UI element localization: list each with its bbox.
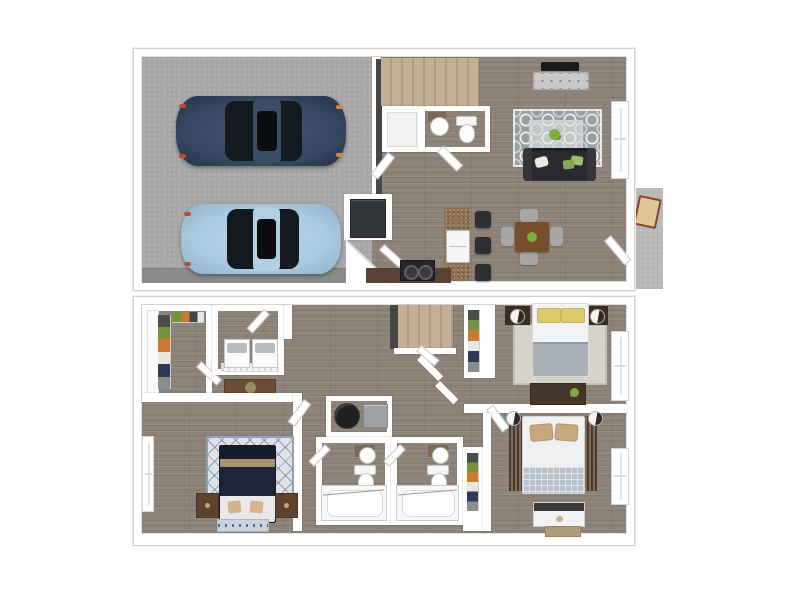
primary-bedroom-top-wall bbox=[142, 393, 302, 402]
bathroom-1-sink bbox=[359, 447, 376, 464]
sofa bbox=[523, 148, 596, 181]
bedroom-3-rug bbox=[545, 526, 581, 537]
bathroom-2 bbox=[391, 437, 463, 525]
walk-in-closet bbox=[142, 305, 212, 400]
mechanical-closet bbox=[326, 396, 392, 437]
half-bath-pedestal-sink bbox=[430, 117, 449, 136]
staircase-second-floor bbox=[398, 305, 453, 349]
fridge-nook bbox=[344, 194, 392, 240]
dining-chair-left bbox=[501, 227, 514, 246]
bedroom-2-bed bbox=[532, 303, 589, 377]
bedroom-2-closet bbox=[464, 305, 495, 378]
navy-car bbox=[176, 96, 346, 166]
burner-right bbox=[418, 265, 433, 280]
bar-stool-1 bbox=[475, 211, 491, 228]
dining-chair-right bbox=[550, 227, 563, 246]
island-double-sink bbox=[446, 230, 470, 263]
bedroom-3-left-wall bbox=[483, 413, 491, 531]
dryer bbox=[252, 339, 278, 368]
bedroom-3-lamp-left bbox=[506, 411, 521, 426]
first-floor-plan bbox=[133, 48, 635, 291]
hanging-clothes-left bbox=[158, 315, 171, 389]
navy-car-sunroof bbox=[257, 111, 277, 152]
garage bbox=[142, 57, 372, 283]
navy-car-taillight-bottom bbox=[179, 154, 186, 158]
pantry-bath-divider bbox=[418, 107, 425, 151]
dining-chair-bottom bbox=[520, 252, 538, 265]
bathroom-2-sink bbox=[432, 447, 449, 464]
light-blue-car bbox=[181, 204, 341, 274]
washer-lid bbox=[227, 343, 246, 354]
living-room-window bbox=[611, 101, 629, 179]
primary-bed-headboard bbox=[220, 446, 275, 459]
washer bbox=[224, 339, 250, 368]
bedroom-3-pillow-left bbox=[529, 423, 553, 442]
dining-chair-top bbox=[520, 209, 538, 222]
burner-left bbox=[404, 265, 419, 280]
sofa-pillow-white bbox=[534, 156, 549, 169]
half-bath-block bbox=[382, 106, 490, 152]
tv-console bbox=[533, 72, 589, 90]
bedroom-3-curtain-left bbox=[509, 416, 522, 491]
dryer-lid bbox=[255, 343, 274, 354]
refrigerator bbox=[350, 199, 386, 238]
bathroom-2-tub bbox=[396, 485, 459, 521]
furnace bbox=[363, 404, 388, 428]
dining-centerpiece-plant bbox=[527, 232, 537, 242]
dining-table bbox=[515, 222, 549, 252]
coffee-table bbox=[529, 120, 583, 150]
bedroom-3-quilt bbox=[523, 467, 584, 493]
sofa-armrest-left bbox=[523, 148, 532, 181]
bedroom-3-window bbox=[611, 448, 629, 505]
bedroom-3-lamp-right bbox=[588, 411, 603, 426]
navy-car-taillight-top bbox=[179, 104, 186, 108]
bedroom-2-nightstand-right bbox=[586, 306, 608, 325]
bedroom-2-lamp-right bbox=[590, 309, 605, 324]
bedroom-3-pillow-right bbox=[554, 423, 578, 442]
bedroom-3-curtain-right bbox=[583, 416, 597, 491]
primary-nightstand-left-knob bbox=[205, 503, 210, 508]
tv bbox=[541, 62, 579, 71]
bedroom-3-bed bbox=[522, 416, 585, 494]
bedroom-3-closet-clothes bbox=[467, 453, 479, 511]
range-stove bbox=[400, 260, 435, 281]
navy-car-headlight-bottom bbox=[336, 153, 343, 157]
bedroom-2-duvet bbox=[533, 342, 588, 376]
bar-stool-3 bbox=[475, 264, 491, 281]
bedroom-2-nightstand-left bbox=[505, 306, 530, 325]
sofa-armrest-right bbox=[587, 148, 596, 181]
bathroom-1 bbox=[316, 437, 391, 525]
bedroom-2-closet-clothes bbox=[468, 310, 480, 372]
primary-bed bbox=[219, 445, 276, 523]
sink-divider bbox=[449, 246, 467, 247]
sofa-pillow-green-2 bbox=[563, 159, 575, 169]
stairwell-side-wall-2 bbox=[390, 305, 398, 349]
bedroom-3-closet bbox=[463, 447, 485, 531]
bedroom-2-window bbox=[611, 331, 629, 401]
bathroom-1-tub bbox=[321, 485, 387, 521]
hanging-clothes-top bbox=[172, 312, 204, 323]
primary-bed-wood-band bbox=[220, 459, 275, 467]
bedroom-3-dresser-top bbox=[534, 503, 584, 511]
half-bath-toilet-bowl bbox=[459, 124, 475, 143]
primary-nightstand-left bbox=[196, 493, 219, 518]
primary-bed-pillow-1 bbox=[227, 500, 241, 513]
blue-car-sunroof bbox=[257, 219, 276, 260]
patio bbox=[633, 188, 663, 289]
blue-car-taillight-top bbox=[184, 212, 191, 216]
primary-nightstand-right-knob bbox=[284, 503, 289, 508]
pantry-shelf bbox=[387, 112, 417, 147]
coffee-table-plant bbox=[549, 129, 560, 140]
bedroom-2-pillow-left bbox=[537, 308, 561, 323]
primary-foot-rug bbox=[217, 519, 269, 532]
primary-bedroom-window bbox=[142, 436, 154, 512]
water-heater bbox=[334, 403, 360, 429]
patio-chair bbox=[633, 195, 662, 229]
bedroom-2-dresser bbox=[530, 383, 586, 405]
hall-wall-top bbox=[284, 305, 292, 339]
second-floor-plan bbox=[133, 296, 635, 546]
primary-dresser bbox=[224, 379, 276, 394]
floor-plan-canvas bbox=[0, 0, 800, 600]
bedroom-3-dresser bbox=[533, 502, 585, 527]
primary-nightstand-right bbox=[275, 493, 298, 518]
navy-car-headlight-top bbox=[336, 105, 343, 109]
bedroom-3-dresser-decor bbox=[556, 516, 563, 522]
bedroom-2-dresser-plant bbox=[570, 388, 579, 397]
staircase-first-floor bbox=[381, 58, 479, 106]
laundry-closet bbox=[212, 305, 284, 375]
bar-stool-2 bbox=[475, 237, 491, 254]
blue-car-taillight-bottom bbox=[184, 262, 191, 266]
primary-bed-pillow-2 bbox=[249, 500, 263, 513]
bedroom-2-pillow-right bbox=[561, 308, 585, 323]
bedroom-2-lamp-left bbox=[510, 309, 525, 324]
